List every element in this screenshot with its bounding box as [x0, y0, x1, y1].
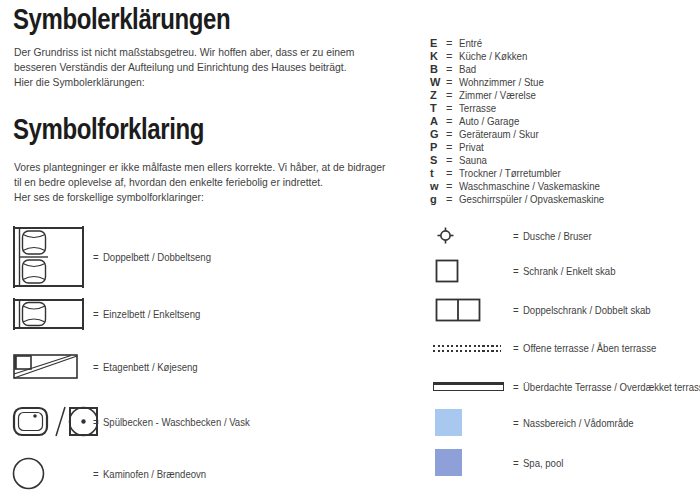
- double-cabinet-icon: [435, 298, 481, 322]
- equals-sign: =: [513, 381, 519, 393]
- equals-sign: =: [446, 115, 459, 127]
- abbreviation-row: T=Terrasse: [430, 101, 624, 114]
- abbr-label: Wohnzimmer / Stue: [459, 76, 544, 88]
- equals-sign: =: [446, 102, 459, 114]
- abbr-label: Sauna: [459, 154, 487, 166]
- abbreviation-row: B=Bad: [430, 62, 624, 75]
- legend-label-text: Nassbereich / Vådområde: [523, 417, 634, 429]
- legend-label-text: Schrank / Enkelt skab: [523, 265, 616, 277]
- equals-sign: =: [93, 361, 99, 373]
- abbr-letter: W: [430, 76, 446, 88]
- double-bed-icon: [12, 226, 86, 288]
- legend-label-text: Spa, pool: [523, 457, 563, 469]
- abbr-label: Trockner / Tørretumbler: [459, 167, 561, 179]
- equals-sign: =: [446, 63, 459, 75]
- abbreviation-row: A=Auto / Garage: [430, 114, 624, 127]
- abbr-label: Zimmer / Værelse: [459, 89, 536, 101]
- equals-sign: =: [513, 230, 519, 242]
- abbreviation-row: t=Trockner / Tørretumbler: [430, 166, 624, 179]
- equals-sign: =: [93, 308, 99, 320]
- abbr-letter: K: [430, 50, 446, 62]
- abbr-letter: Z: [430, 89, 446, 101]
- legend-page: Symbolerklärungen Der Grundriss ist nich…: [0, 0, 700, 500]
- abbr-letter: g: [430, 193, 446, 205]
- equals-sign: =: [446, 193, 459, 205]
- equals-sign: =: [446, 76, 459, 88]
- equals-sign: =: [446, 141, 459, 153]
- page-title-danish: Symbolforklaring: [13, 112, 204, 146]
- wet-area-swatch: [435, 409, 462, 436]
- legend-label: =Überdachte Terrasse / Overdækket terras…: [513, 381, 700, 393]
- equals-sign: =: [513, 342, 519, 354]
- abbreviation-row: W=Wohnzimmer / Stue: [430, 75, 624, 88]
- legend-row: =Dusche / Bruser: [433, 227, 454, 244]
- spa-pool-swatch: [435, 449, 462, 476]
- legend-label: =Doppelbett / Dobbeltseng: [93, 251, 211, 263]
- abbr-letter: G: [430, 128, 446, 140]
- abbr-label: Privat: [459, 141, 484, 153]
- intro-paragraph-danish: Vores plantegninger er ikke målfaste men…: [14, 160, 410, 205]
- legend-row: =Etagenbett / Køjeseng: [12, 353, 80, 380]
- legend-label: =Einzelbett / Enkeltseng: [93, 308, 200, 320]
- legend-row: =Doppelschrank / Dobbelt skab: [433, 298, 481, 322]
- legend-label-text: Doppelschrank / Dobbelt skab: [523, 304, 651, 316]
- abbr-letter: B: [430, 63, 446, 75]
- legend-label: =Spa, pool: [513, 457, 563, 469]
- equals-sign: =: [513, 417, 519, 429]
- legend-label: =Nassbereich / Vådområde: [513, 417, 634, 429]
- legend-label-text: Spülbecken - Waschbecken / Vask: [103, 416, 250, 428]
- single-cabinet-icon: [435, 259, 459, 283]
- sink-washbasin-icons: [12, 405, 102, 438]
- equals-sign: =: [446, 128, 459, 140]
- legend-label-text: Doppelbett / Dobbeltseng: [103, 251, 211, 263]
- legend-label: =Etagenbett / Køjeseng: [93, 361, 198, 373]
- legend-row: =Spülbecken - Waschbecken / Vask: [12, 405, 102, 438]
- abbreviation-list: E=Entré K=Küche / Køkken B=Bad W=Wohnzim…: [430, 36, 624, 206]
- abbreviation-row: Z=Zimmer / Værelse: [430, 88, 624, 101]
- legend-label-text: Überdachte Terrasse / Overdækket terrass…: [523, 381, 700, 393]
- abbreviation-row: E=Entré: [430, 36, 624, 49]
- abbreviation-row: S=Sauna: [430, 153, 624, 166]
- equals-sign: =: [93, 416, 99, 428]
- abbr-letter: w: [430, 180, 446, 192]
- legend-row: =Nassbereich / Vådområde: [433, 409, 462, 436]
- legend-label-text: Einzelbett / Enkeltseng: [103, 308, 200, 320]
- abbr-letter: T: [430, 102, 446, 114]
- legend-label: =Schrank / Enkelt skab: [513, 265, 616, 277]
- abbr-label: Terrasse: [459, 102, 496, 114]
- legend-label-text: Etagenbett / Køjeseng: [103, 361, 198, 373]
- legend-row: =Kaminofen / Brændeovn: [12, 457, 45, 490]
- legend-label: =Offene terrasse / Åben terrasse: [513, 342, 656, 354]
- equals-sign: =: [513, 265, 519, 277]
- abbr-label: Küche / Køkken: [459, 50, 527, 62]
- abbr-letter: P: [430, 141, 446, 153]
- equals-sign: =: [446, 37, 459, 49]
- abbr-letter: t: [430, 167, 446, 179]
- abbr-label: Waschmaschine / Vaskemaskine: [459, 180, 600, 192]
- abbreviation-row: P=Privat: [430, 140, 624, 153]
- legend-row: =Schrank / Enkelt skab: [433, 259, 459, 283]
- abbr-letter: A: [430, 115, 446, 127]
- abbr-letter: S: [430, 154, 446, 166]
- abbr-letter: E: [430, 37, 446, 49]
- equals-sign: =: [93, 251, 99, 263]
- intro-paragraph-german: Der Grundriss ist nicht maßstabsgetreu. …: [14, 45, 410, 90]
- abbr-label: Geschirrspüler / Opvaskemaskine: [459, 193, 604, 205]
- legend-row: =Spa, pool: [433, 449, 462, 476]
- abbr-label: Geräteraum / Skur: [459, 128, 539, 140]
- shower-icon: [437, 227, 454, 244]
- legend-label: =Spülbecken - Waschbecken / Vask: [93, 416, 250, 428]
- equals-sign: =: [446, 89, 459, 101]
- legend-label: =Kaminofen / Brændeovn: [93, 468, 206, 480]
- equals-sign: =: [446, 167, 459, 179]
- abbreviation-row: K=Küche / Køkken: [430, 49, 624, 62]
- abbreviation-row: g=Geschirrspüler / Opvaskemaskine: [430, 193, 624, 206]
- legend-row: =Einzelbett / Enkeltseng: [12, 298, 86, 330]
- equals-sign: =: [446, 180, 459, 192]
- covered-terrace-icon: [433, 382, 504, 391]
- legend-label-text: Kaminofen / Brændeovn: [103, 468, 206, 480]
- bunk-bed-icon: [12, 353, 80, 380]
- equals-sign: =: [446, 50, 459, 62]
- open-terrace-icon: [433, 345, 501, 352]
- abbr-label: Auto / Garage: [459, 115, 519, 127]
- equals-sign: =: [513, 457, 519, 469]
- abbreviation-row: G=Geräteraum / Skur: [430, 127, 624, 140]
- legend-label-text: Dusche / Bruser: [523, 230, 592, 242]
- legend-label: =Dusche / Bruser: [513, 230, 592, 242]
- legend-row: =Überdachte Terrasse / Overdækket terras…: [433, 382, 504, 391]
- equals-sign: =: [446, 154, 459, 166]
- legend-row: =Doppelbett / Dobbeltseng: [12, 226, 86, 288]
- legend-row: =Offene terrasse / Åben terrasse: [433, 344, 501, 352]
- abbr-label: Entré: [459, 37, 482, 49]
- equals-sign: =: [93, 468, 99, 480]
- equals-sign: =: [513, 304, 519, 316]
- legend-label: =Doppelschrank / Dobbelt skab: [513, 304, 651, 316]
- single-bed-icon: [12, 298, 86, 330]
- page-title-german: Symbolerklärungen: [13, 2, 230, 36]
- abbr-label: Bad: [459, 63, 476, 75]
- abbreviation-row: w=Waschmaschine / Vaskemaskine: [430, 180, 624, 193]
- legend-label-text: Offene terrasse / Åben terrasse: [523, 342, 656, 354]
- wood-stove-icon: [12, 457, 45, 490]
